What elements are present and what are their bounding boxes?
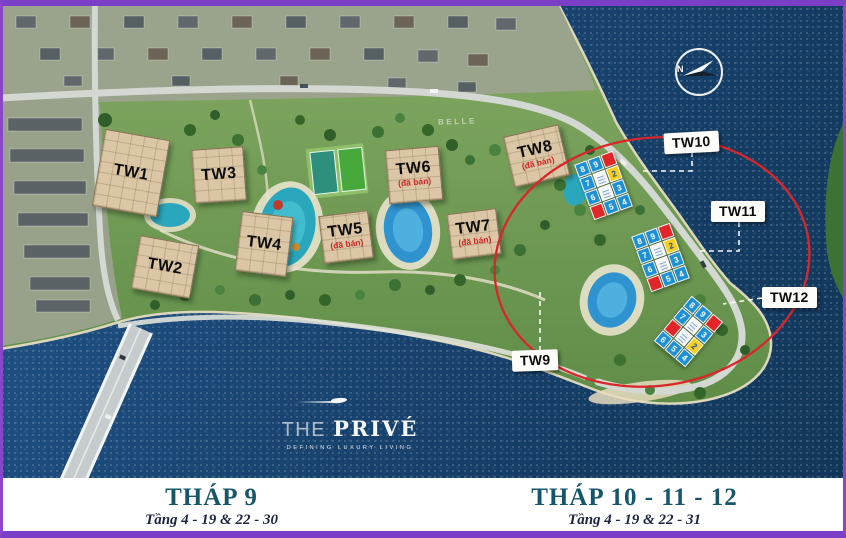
tower-tw7: TW7 (đã bán) bbox=[446, 208, 501, 260]
caption-right-title: THÁP 10 - 11 - 12 bbox=[531, 485, 738, 510]
tower-label-tw4: TW4 bbox=[246, 234, 283, 254]
logo-prive: PRIVÉ bbox=[333, 416, 418, 441]
caption-left-subtitle: Tầng 4 - 19 & 22 - 30 bbox=[145, 512, 278, 529]
callout-tw12: TW12 bbox=[762, 287, 817, 308]
tower-status-tw6: (đã bán) bbox=[398, 176, 432, 190]
compass-needle-icon bbox=[677, 50, 721, 94]
callout-label-tw11: TW11 bbox=[719, 203, 757, 219]
tower-tw3: TW3 bbox=[191, 146, 247, 203]
callout-tw10: TW10 bbox=[663, 131, 719, 155]
tower-label-tw3: TW3 bbox=[201, 166, 237, 184]
boat-wake bbox=[296, 401, 334, 403]
tower-tw6: TW6 (đã bán) bbox=[385, 146, 444, 205]
bridge bbox=[60, 323, 153, 478]
tower-tw2: TW2 bbox=[131, 235, 199, 299]
callout-label-tw10: TW10 bbox=[672, 133, 711, 151]
callout-label-tw12: TW12 bbox=[770, 289, 809, 305]
caption-right-subtitle: Tầng 4 - 19 & 22 - 31 bbox=[568, 512, 701, 529]
callout-label-tw9: TW9 bbox=[520, 351, 551, 368]
caption-band: THÁP 9 Tầng 4 - 19 & 22 - 30 THÁP 10 - 1… bbox=[0, 478, 846, 538]
masterplan-poster: TW1 TW2 TW3 TW4 TW5 (đã bán) TW6 (đã bán… bbox=[0, 0, 846, 538]
callout-tw11: TW11 bbox=[711, 201, 765, 222]
logo-tagline: DEFINING LUXURY LIVING bbox=[262, 445, 438, 451]
tower-label-tw1: TW1 bbox=[112, 162, 150, 184]
tower-label-tw2: TW2 bbox=[146, 256, 184, 278]
logo-the: THE bbox=[282, 419, 327, 442]
compass-icon: N bbox=[675, 48, 723, 96]
caption-right: THÁP 10 - 11 - 12 Tầng 4 - 19 & 22 - 31 bbox=[423, 478, 846, 538]
project-logo: THE PRIVÉ DEFINING LUXURY LIVING bbox=[262, 416, 438, 451]
tower-tw5: TW5 (đã bán) bbox=[318, 210, 373, 264]
caption-left-title: THÁP 9 bbox=[165, 485, 258, 510]
caption-left: THÁP 9 Tầng 4 - 19 & 22 - 30 bbox=[0, 478, 423, 538]
tower-tw4: TW4 bbox=[235, 211, 294, 277]
tower-tw1: TW1 bbox=[92, 129, 171, 217]
callout-tw9: TW9 bbox=[512, 349, 559, 372]
site-lettering: BELLE bbox=[438, 116, 477, 126]
